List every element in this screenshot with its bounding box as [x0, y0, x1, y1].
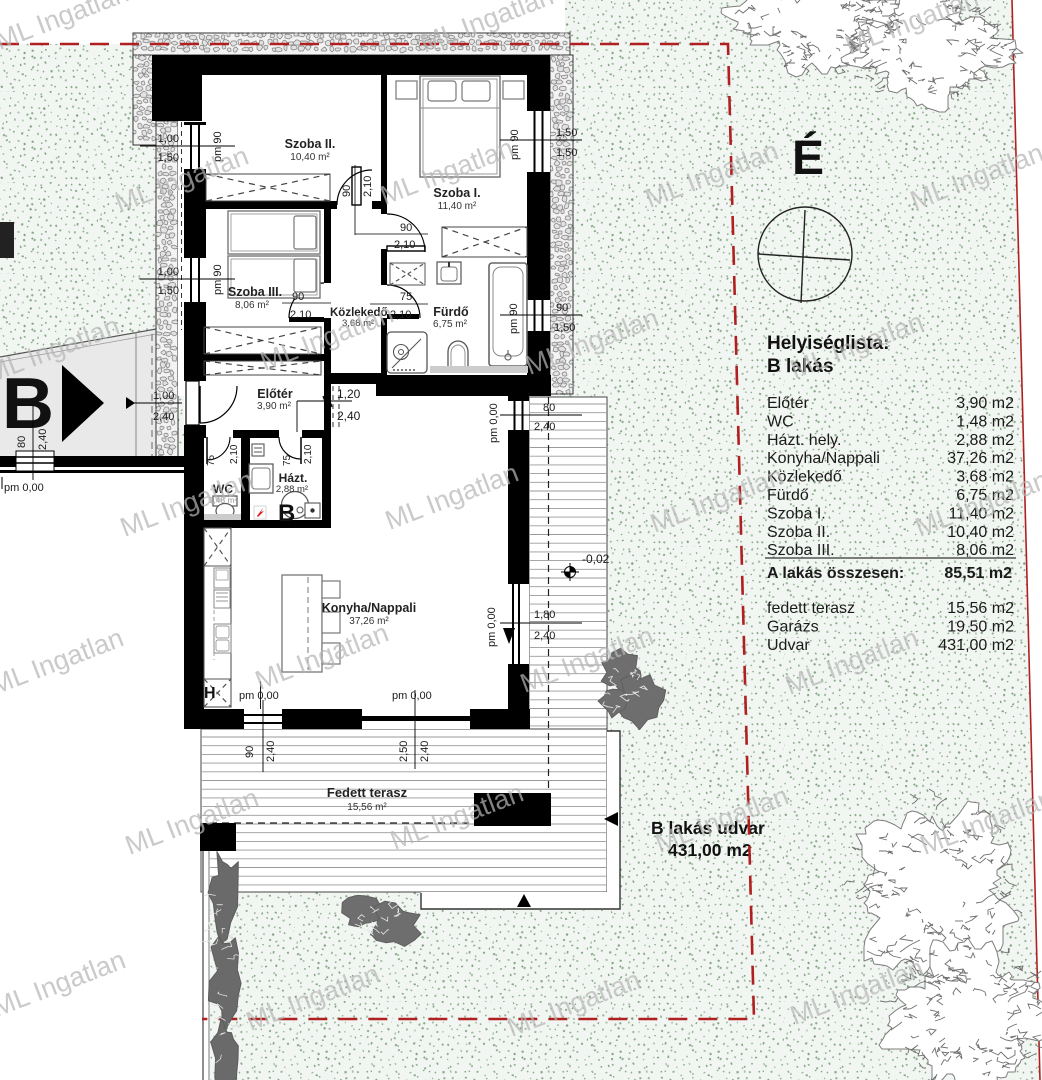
svg-text:pm 0,00: pm 0,00 — [486, 607, 498, 647]
svg-text:90: 90 — [400, 222, 412, 234]
svg-text:2,10: 2,10 — [229, 444, 240, 464]
svg-text:2,40: 2,40 — [419, 741, 431, 762]
svg-text:75: 75 — [206, 454, 217, 466]
svg-text:90: 90 — [292, 291, 304, 303]
svg-text:1,80: 1,80 — [534, 609, 555, 621]
svg-text:6,75 m²: 6,75 m² — [433, 319, 468, 330]
svg-text:pm 0,00: pm 0,00 — [239, 690, 279, 702]
svg-text:B: B — [278, 500, 295, 527]
svg-text:2,10: 2,10 — [394, 239, 415, 251]
svg-text:Szoba II.: Szoba II. — [767, 524, 830, 541]
svg-text:90: 90 — [341, 185, 353, 197]
svg-text:1,20: 1,20 — [337, 387, 361, 401]
svg-text:pm 0,00: pm 0,00 — [4, 482, 44, 494]
svg-text:80: 80 — [543, 402, 555, 414]
svg-text:WC: WC — [767, 413, 794, 430]
svg-text:1,48 m2: 1,48 m2 — [956, 413, 1014, 430]
svg-text:1,00: 1,00 — [153, 390, 174, 402]
svg-text:15,56 m2: 15,56 m2 — [947, 600, 1014, 617]
svg-text:Fürdő: Fürdő — [433, 305, 469, 319]
svg-text:Szoba II.: Szoba II. — [285, 137, 336, 151]
svg-text:75: 75 — [400, 291, 412, 303]
svg-text:8,06 m²: 8,06 m² — [235, 300, 270, 311]
svg-text:Konyha/Nappali: Konyha/Nappali — [322, 601, 416, 615]
svg-text:pm 90: pm 90 — [212, 264, 224, 295]
svg-text:1,00: 1,00 — [158, 266, 179, 278]
svg-text:2,10: 2,10 — [303, 444, 314, 464]
svg-text:pm 0,00: pm 0,00 — [392, 690, 432, 702]
svg-text:2,88 m2: 2,88 m2 — [956, 432, 1014, 449]
svg-text:fedett terasz: fedett terasz — [767, 600, 855, 617]
svg-text:3,90 m2: 3,90 m2 — [956, 395, 1014, 412]
svg-text:2,40: 2,40 — [37, 429, 49, 450]
svg-text:pm 0,00: pm 0,00 — [488, 403, 500, 443]
svg-text:2,10: 2,10 — [362, 176, 374, 197]
svg-text:Házt. hely.: Házt. hely. — [767, 432, 841, 449]
svg-text:1,50: 1,50 — [556, 127, 577, 139]
svg-text:Házt.: Házt. — [279, 471, 308, 485]
svg-text:Előtér: Előtér — [767, 395, 809, 412]
svg-text:2,40: 2,40 — [153, 411, 174, 423]
svg-text:2,40: 2,40 — [534, 630, 555, 642]
svg-text:1,00: 1,00 — [158, 133, 179, 145]
svg-text:10,40 m²: 10,40 m² — [290, 152, 330, 163]
svg-text:1,50: 1,50 — [556, 147, 577, 159]
svg-text:3,90 m²: 3,90 m² — [257, 401, 292, 412]
svg-text:É: É — [792, 131, 824, 185]
svg-text:85,51 m2: 85,51 m2 — [944, 565, 1012, 582]
svg-text:431,00 m2: 431,00 m2 — [938, 637, 1014, 654]
svg-text:2,50: 2,50 — [398, 741, 410, 762]
svg-text:90: 90 — [244, 746, 256, 758]
svg-text:1,50: 1,50 — [158, 152, 179, 164]
svg-text:19,50 m2: 19,50 m2 — [947, 619, 1014, 636]
svg-text:2,10: 2,10 — [290, 309, 311, 321]
svg-text:2,40: 2,40 — [337, 409, 361, 423]
svg-text:Fedett terasz: Fedett terasz — [327, 785, 408, 800]
svg-text:Szoba I.: Szoba I. — [767, 505, 826, 522]
svg-text:37,26 m2: 37,26 m2 — [947, 450, 1014, 467]
svg-text:pm 90: pm 90 — [508, 303, 520, 334]
svg-text:Konyha/Nappali: Konyha/Nappali — [767, 450, 880, 467]
svg-text:Előtér: Előtér — [257, 387, 293, 401]
svg-text:Szoba III.: Szoba III. — [767, 542, 835, 559]
svg-text:Udvar: Udvar — [767, 637, 810, 654]
svg-text:11,40 m²: 11,40 m² — [438, 201, 477, 212]
svg-text:Szoba III.: Szoba III. — [228, 285, 282, 299]
svg-text:90: 90 — [556, 302, 568, 314]
svg-text:Garázs: Garázs — [767, 619, 819, 636]
svg-text:1,50: 1,50 — [158, 285, 179, 297]
svg-text:75: 75 — [282, 454, 293, 466]
svg-text:2,88 m²: 2,88 m² — [276, 484, 308, 495]
svg-text:15,56 m²: 15,56 m² — [347, 802, 387, 813]
svg-text:H: H — [204, 685, 216, 702]
svg-text:A lakás összesen:: A lakás összesen: — [767, 565, 904, 582]
svg-text:-0,02: -0,02 — [582, 552, 610, 566]
svg-text:2,40: 2,40 — [534, 421, 555, 433]
svg-text:2,40: 2,40 — [265, 741, 277, 762]
svg-text:80: 80 — [16, 436, 28, 448]
svg-text:8,06 m2: 8,06 m2 — [956, 542, 1014, 559]
